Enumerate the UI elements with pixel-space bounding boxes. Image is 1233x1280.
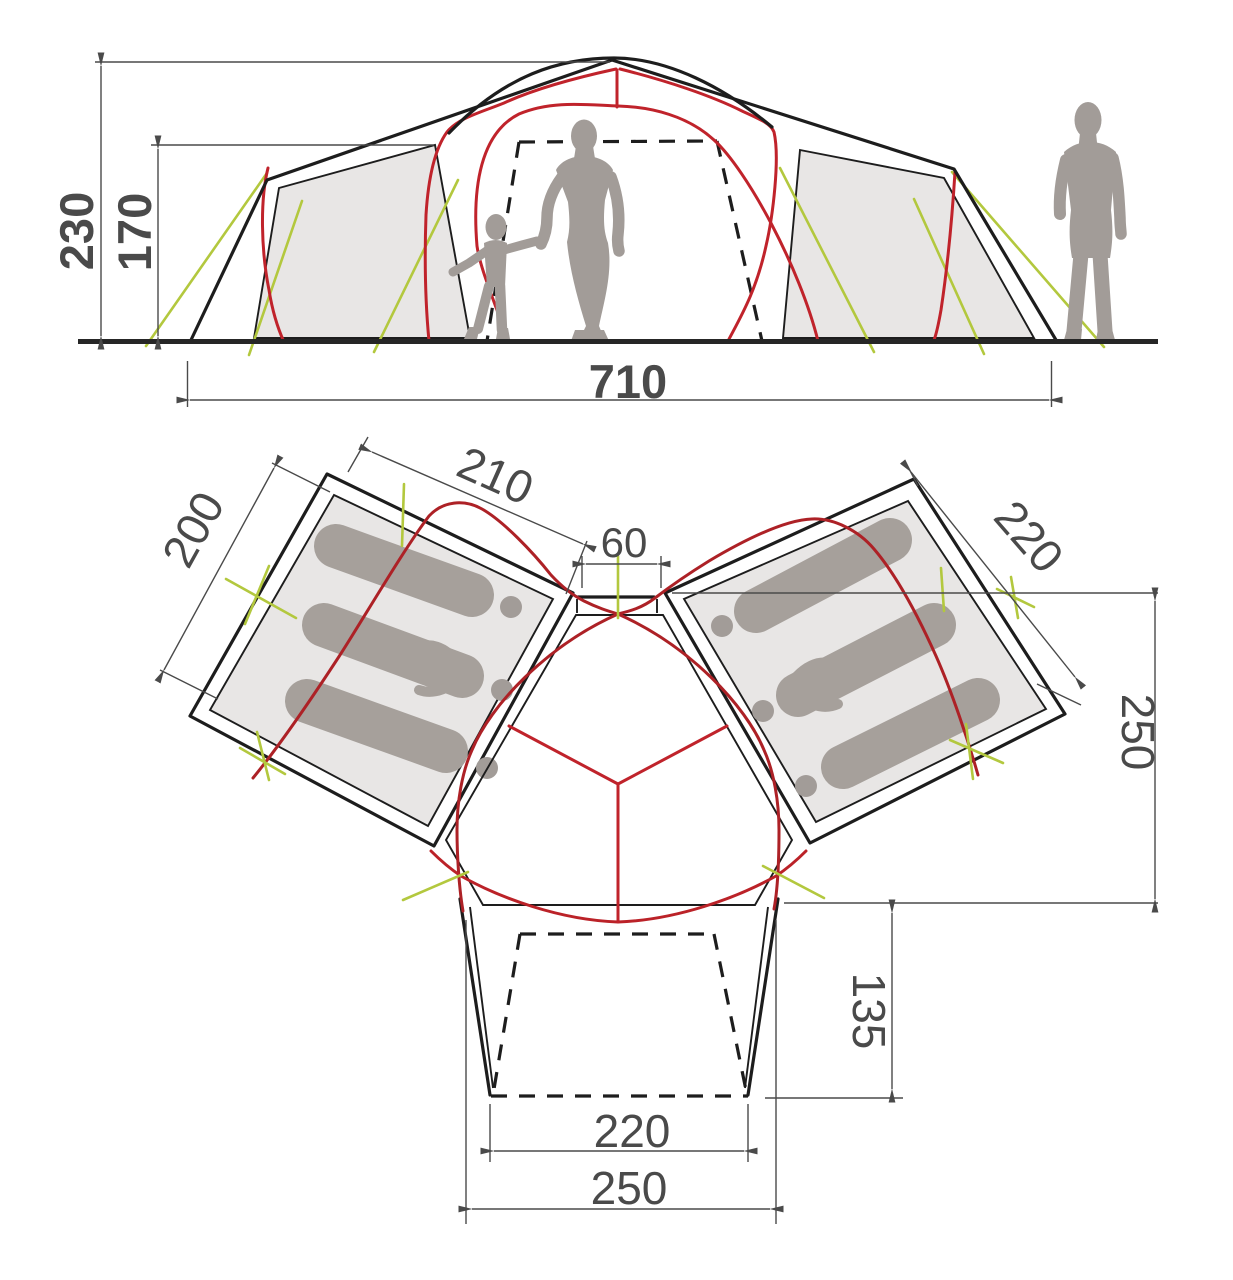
svg-text:200: 200 [152, 483, 235, 575]
svg-text:220: 220 [984, 490, 1074, 582]
svg-text:60: 60 [601, 519, 648, 566]
svg-text:170: 170 [108, 193, 161, 271]
svg-text:220: 220 [594, 1105, 671, 1157]
svg-text:710: 710 [589, 355, 667, 408]
svg-text:230: 230 [50, 192, 103, 270]
svg-text:250: 250 [1112, 694, 1164, 771]
svg-text:135: 135 [843, 973, 895, 1050]
svg-text:250: 250 [591, 1162, 668, 1214]
